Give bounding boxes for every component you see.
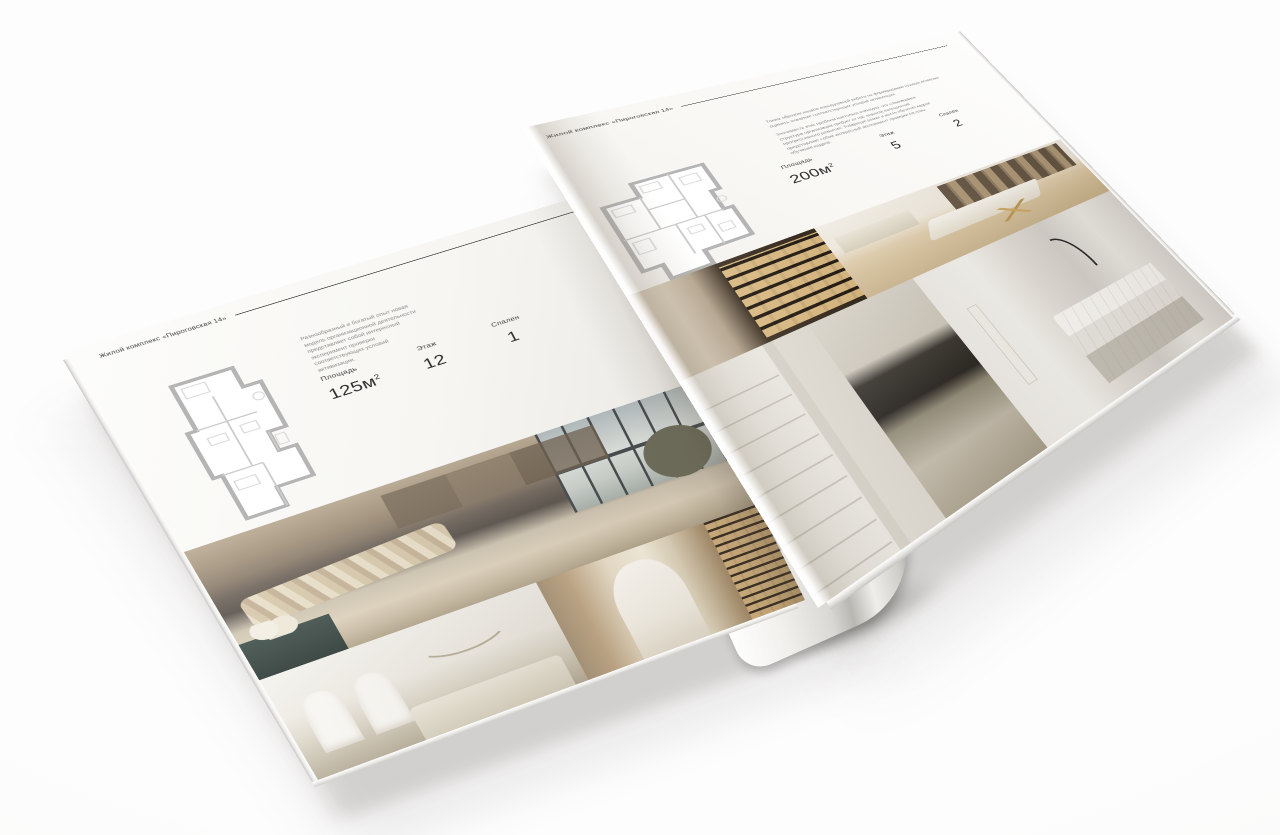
- flower-bouquet: [242, 609, 310, 646]
- black-faucet: [1049, 231, 1098, 274]
- left-floor-value: 12: [412, 348, 457, 375]
- sideboard: [834, 210, 920, 253]
- bookcase-wall: [937, 143, 1077, 212]
- left-bedrooms-value: 1: [491, 323, 535, 350]
- headboard-panel: [380, 424, 609, 528]
- left-stat-bedrooms: Спален 1: [485, 312, 535, 350]
- bed-pillows: [238, 521, 460, 629]
- floor-plan-drawing-125: [151, 353, 337, 529]
- left-floor-plan: [151, 353, 337, 529]
- right-stat-area: Площадь 200м2: [780, 153, 840, 187]
- arched-niche: [295, 685, 366, 753]
- right-floor-value: 5: [878, 136, 915, 155]
- brochure-mockup-scene: Жилой комплекс «Пироговская 14»: [0, 0, 1280, 835]
- right-stat-floor: Этаж 5: [871, 128, 915, 155]
- left-header-rule: [235, 210, 577, 315]
- arched-niche: [345, 667, 414, 734]
- right-bedrooms-value: 2: [941, 114, 974, 131]
- left-header-title: Жилой комплекс «Пироговская 14»: [98, 315, 228, 359]
- gold-table-legs: [988, 196, 1039, 225]
